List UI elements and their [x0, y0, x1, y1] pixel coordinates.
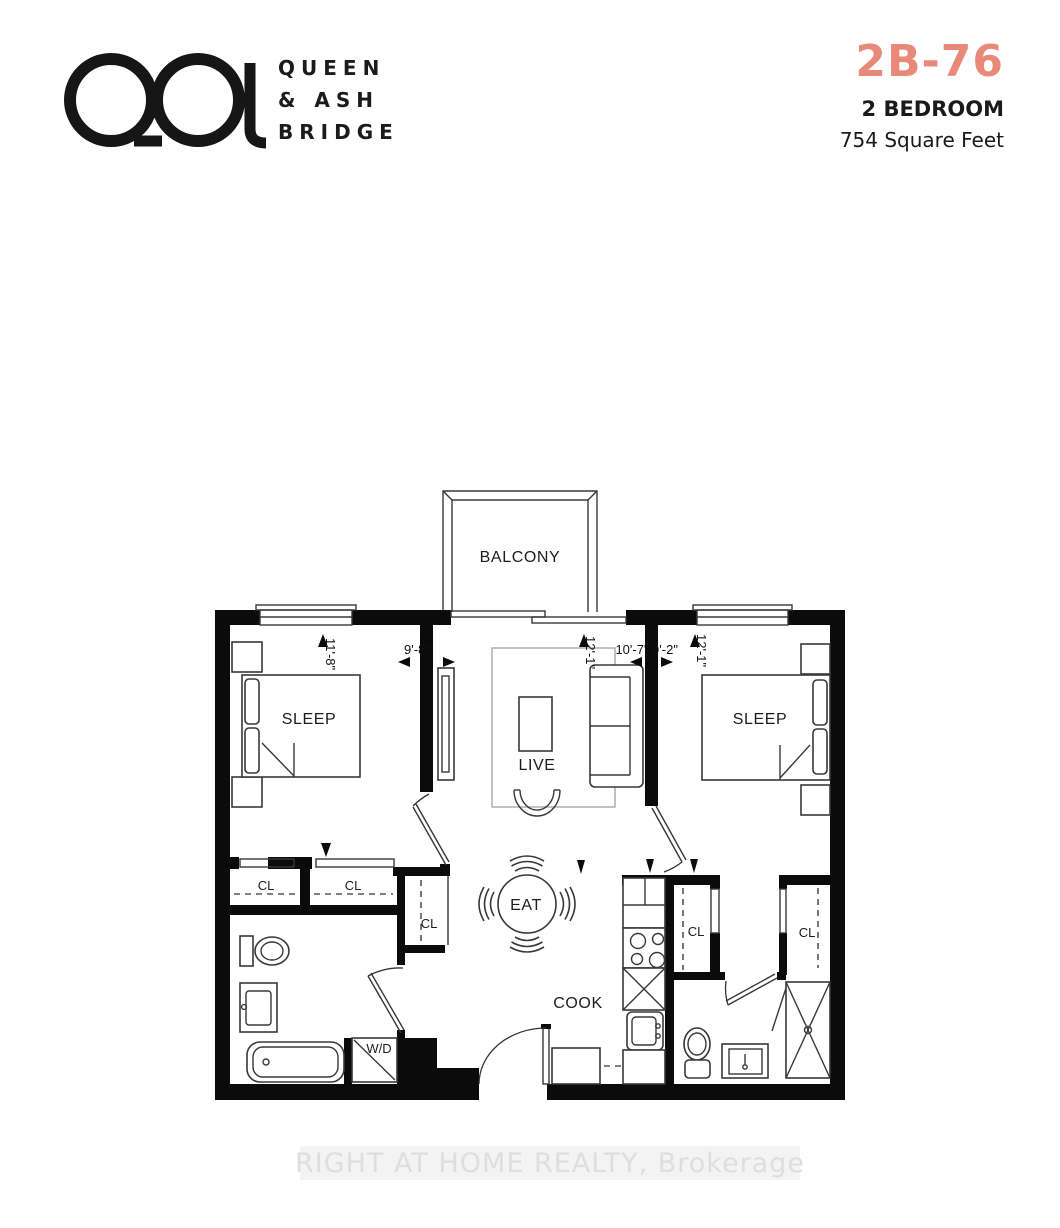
pillow	[245, 679, 259, 724]
brokerage-watermark: RIGHT AT HOME REALTY, Brokerage	[300, 1146, 800, 1180]
entry-door-leaf	[543, 1028, 549, 1084]
cook-label: COOK	[553, 995, 603, 1012]
sleep-right-label: SLEEP	[733, 711, 788, 728]
dim-live-width: 12'-1"	[583, 636, 598, 670]
entry-door-swing	[479, 1028, 546, 1084]
lower-cabinet	[552, 1048, 600, 1084]
dim-sleep-right-width: 12'-1"	[694, 634, 709, 668]
cabinet	[623, 1050, 665, 1084]
closet-label: CL	[258, 878, 275, 893]
coffee-table	[519, 697, 552, 751]
nightstand	[232, 642, 262, 672]
balcony-slider-panel	[532, 617, 626, 623]
bathroom-left	[240, 936, 397, 1082]
washer-dryer-label: W/D	[366, 1041, 391, 1056]
dim-sleep-left-width: 11'-8"	[323, 638, 338, 671]
toilet	[255, 937, 289, 965]
balcony-label: BALCONY	[480, 549, 561, 566]
nightstand	[232, 777, 262, 807]
toilet-tank	[240, 936, 253, 966]
living-furniture	[438, 665, 643, 816]
shower-door	[772, 988, 786, 1031]
sleep-left-label: SLEEP	[282, 711, 337, 728]
live-label: LIVE	[518, 757, 555, 774]
floorplan-page: QUEEN & ASH BRIDGE 2B-76 2 BEDROOM 754 S…	[0, 0, 1060, 1228]
pillow	[245, 728, 259, 773]
closet-label: CL	[345, 878, 362, 893]
console	[438, 668, 454, 780]
floorplan-drawing: BALCONY SLEEP SLEEP LIVE EAT COOK CL CL …	[0, 0, 1060, 1228]
nightstand	[801, 785, 830, 815]
brokerage-watermark-text: RIGHT AT HOME REALTY, Brokerage	[295, 1148, 805, 1179]
dim-live-depth: 10'-7"	[615, 642, 649, 657]
bathroom-right	[684, 982, 830, 1078]
cabinet	[623, 878, 665, 928]
toilet-tank	[685, 1060, 710, 1078]
pillow	[813, 729, 827, 774]
pillow	[813, 680, 827, 725]
closet-label: CL	[421, 916, 438, 931]
bedroom-right-furniture	[702, 644, 830, 815]
windows	[256, 605, 792, 625]
bathtub	[247, 1042, 344, 1082]
dim-foyer-width: 9'-2"	[652, 642, 678, 657]
closet-label: CL	[688, 924, 705, 939]
balcony-slider-panel	[451, 611, 545, 617]
nightstand	[801, 644, 830, 674]
closet-label: CL	[799, 925, 816, 940]
balcony-door-jamb	[445, 610, 451, 625]
dim-sleep-left-depth: 9'-8"	[404, 642, 430, 657]
eat-label: EAT	[510, 897, 542, 914]
